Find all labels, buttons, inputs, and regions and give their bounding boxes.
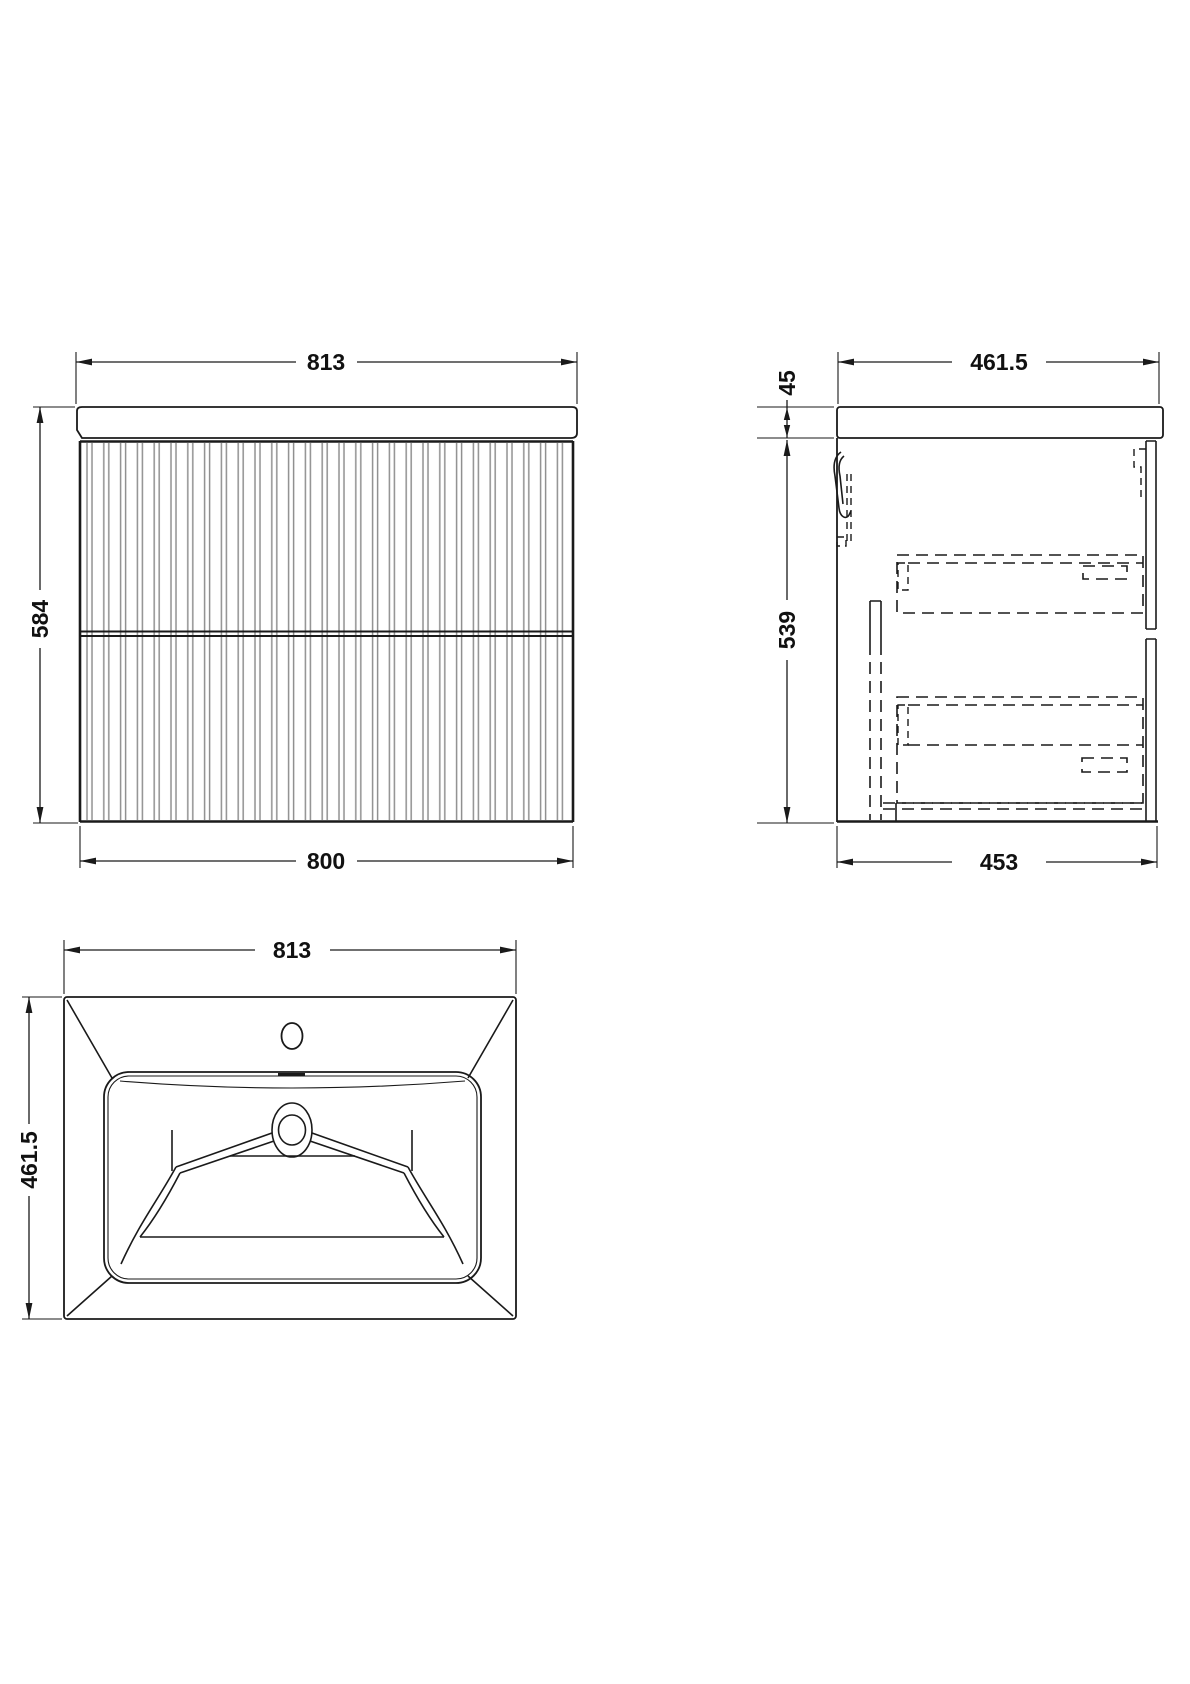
front-bottom-width-dimension: 800 (80, 826, 573, 874)
dimension-arrow-right (561, 359, 577, 366)
dimension-arrow-down (784, 807, 791, 823)
front-bottom-width-label: 800 (307, 848, 345, 874)
basin-outer-rim (64, 997, 516, 1319)
front-top-width-label: 813 (307, 349, 345, 375)
side-bottom-depth-dimension: 453 (837, 826, 1157, 875)
basin-plan-view: 813 461.5 (16, 937, 516, 1319)
dimension-arrow-up (784, 440, 791, 456)
drawer-handle-recess (1083, 566, 1127, 579)
front-height-label: 584 (27, 600, 53, 639)
dimension-arrow-left (64, 947, 80, 954)
basin-width-label: 813 (273, 937, 311, 963)
dimension-arrow-left (80, 858, 96, 865)
side-depth-dimension: 461.5 (838, 349, 1159, 404)
dimension-arrow-right (1141, 859, 1157, 866)
side-bottom-depth-label: 453 (980, 849, 1018, 875)
vanity-unit-technical-drawing: 813 584 800 (0, 0, 1190, 1684)
lower-drawer-hidden (897, 697, 1143, 803)
front-worktop-outline (77, 407, 577, 438)
dimension-arrow-down (26, 1303, 33, 1319)
tap-hole (282, 1023, 303, 1049)
basin-width-dimension: 813 (64, 937, 516, 994)
dimension-arrow-up (784, 408, 790, 420)
dimension-arrow-right (1143, 359, 1159, 366)
drawer-fixing-bracket (1134, 449, 1146, 497)
basin-depth-label: 461.5 (16, 1131, 42, 1189)
basin-depth-dimension: 461.5 (16, 997, 62, 1319)
bowl-contours (121, 1130, 463, 1264)
dimension-arrow-right (557, 858, 573, 865)
drawer-runner (898, 705, 908, 745)
dimension-arrow-up (37, 407, 44, 423)
side-elevation-view: 461.5 45 539 (757, 349, 1163, 875)
back-panel-rails (870, 601, 881, 820)
side-worktop-thickness-dimension: 45 (757, 370, 834, 438)
dimension-arrow-right (500, 947, 516, 954)
side-worktop-outline (837, 407, 1163, 438)
drawer-handle-recess (1082, 758, 1127, 772)
front-cabinet-body (80, 441, 573, 822)
basin-corner-chamfers (67, 1000, 513, 1316)
dimension-arrow-left (838, 359, 854, 366)
upper-drawer-hidden (897, 555, 1143, 613)
side-cabinet-body (834, 438, 1158, 822)
front-elevation-view: 813 584 800 (27, 349, 577, 874)
side-worktop-thickness-label: 45 (774, 370, 800, 396)
technical-drawing-page: 813 584 800 (0, 0, 1190, 1684)
front-top-width-dimension: 813 (76, 349, 577, 404)
bottom-panel-hidden (883, 803, 1143, 821)
dimension-arrow-left (76, 359, 92, 366)
front-ledge-curve (120, 1081, 465, 1088)
side-drawer-fronts (1146, 441, 1156, 821)
dimension-arrow-down (784, 425, 790, 437)
front-height-dimension: 584 (27, 407, 78, 823)
dimension-arrow-down (37, 807, 44, 823)
dimension-arrow-up (26, 997, 33, 1013)
side-cabinet-height-dimension: 539 (757, 440, 834, 823)
bracket-foot (837, 537, 846, 546)
waste-hole (272, 1103, 312, 1157)
side-depth-label: 461.5 (970, 349, 1028, 375)
side-cabinet-height-label: 539 (774, 611, 800, 649)
drawer-runner (898, 563, 908, 590)
dimension-arrow-left (837, 859, 853, 866)
